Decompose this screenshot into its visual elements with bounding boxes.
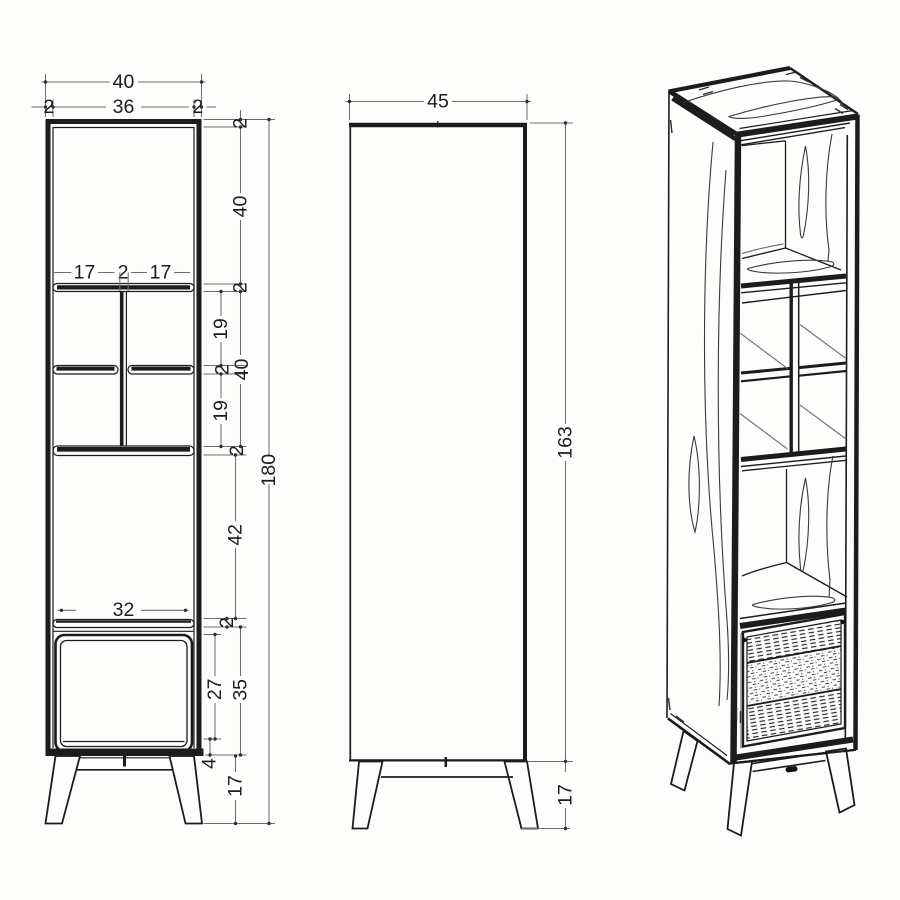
svg-text:40: 40	[230, 196, 252, 218]
svg-text:32: 32	[113, 599, 135, 621]
svg-text:45: 45	[427, 91, 449, 113]
svg-text:42: 42	[225, 524, 247, 546]
svg-text:17: 17	[225, 775, 247, 797]
svg-text:2: 2	[118, 262, 129, 284]
svg-text:17: 17	[555, 784, 577, 806]
svg-text:36: 36	[113, 96, 135, 118]
svg-text:180: 180	[258, 454, 280, 487]
svg-text:19: 19	[210, 318, 232, 340]
svg-text:35: 35	[230, 679, 252, 701]
svg-text:4: 4	[199, 758, 221, 769]
svg-text:17: 17	[74, 262, 96, 284]
svg-text:17: 17	[150, 262, 172, 284]
svg-text:40: 40	[113, 71, 135, 93]
svg-text:27: 27	[204, 678, 226, 700]
svg-text:40: 40	[231, 359, 253, 381]
svg-text:19: 19	[210, 400, 232, 422]
svg-text:163: 163	[555, 426, 577, 459]
